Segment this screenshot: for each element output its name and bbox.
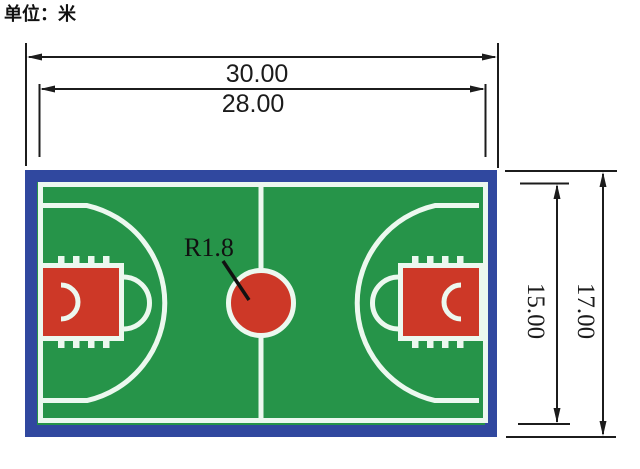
center-circle-radius-label: R1.8 (184, 233, 234, 262)
lane-tick (427, 256, 434, 264)
lane-tick (442, 340, 449, 348)
dimension-text-outer-length: 30.00 (226, 60, 289, 88)
lane-tick (412, 340, 419, 348)
unit-label: 单位：米 (4, 3, 77, 24)
lane-tick (103, 340, 110, 348)
dimension-text-inner-width: 15.00 (522, 283, 549, 339)
arrow-right-icon (470, 86, 485, 93)
lane-tick (412, 256, 419, 264)
arrow-left-icon (40, 86, 55, 93)
lane-tick (88, 256, 95, 264)
lane-tick (73, 256, 80, 264)
center-circle (229, 271, 294, 336)
arrow-down-icon (554, 408, 561, 423)
lane-tick (442, 256, 449, 264)
dimension-text-outer-width: 17.00 (572, 283, 599, 339)
lane-tick (58, 340, 65, 348)
arrow-left-icon (27, 54, 42, 61)
key-right (401, 266, 482, 339)
arrow-right-icon (482, 54, 497, 61)
drawing-canvas: 单位：米 30.00 28.00 (0, 0, 640, 469)
court-diagram: 单位：米 30.00 28.00 (0, 0, 640, 469)
lane-tick (88, 340, 95, 348)
lane-tick (58, 256, 65, 264)
arrow-up-icon (554, 184, 561, 199)
lane-tick (73, 340, 80, 348)
lane-tick (457, 256, 464, 264)
lane-tick (103, 256, 110, 264)
arrow-down-icon (600, 421, 607, 436)
lane-tick (427, 340, 434, 348)
key-left (41, 266, 122, 339)
lane-tick (457, 340, 464, 348)
dimension-text-inner-length: 28.00 (222, 90, 285, 118)
arrow-up-icon (600, 172, 607, 187)
